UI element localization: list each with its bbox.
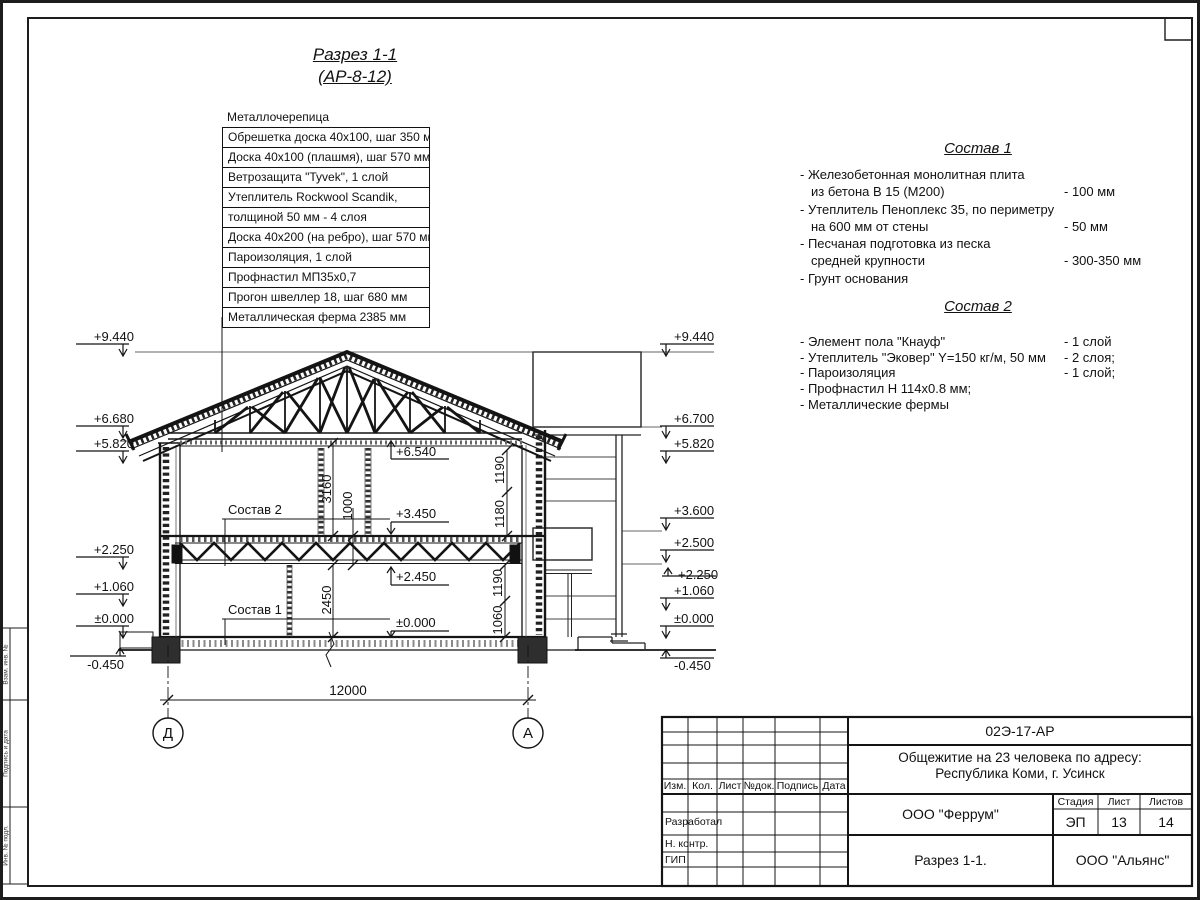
elevation-mark: +1.060 bbox=[674, 584, 734, 598]
callout-row: Пароизоляция, 1 слой bbox=[223, 248, 429, 268]
titleblock-col-data: Дата bbox=[820, 781, 848, 792]
sostav2-item: - Утеплитель "Эковер" Y=150 кг/м, 50 мм bbox=[800, 350, 1064, 366]
sostav1-heading: Состав 1 bbox=[923, 140, 1033, 157]
dim-overall-width: 12000 bbox=[303, 683, 393, 698]
elevation-mark: +9.440 bbox=[674, 330, 734, 344]
ground-and-foundation bbox=[118, 632, 716, 667]
level-label: +2.450 bbox=[396, 570, 436, 584]
dim-floor2-height: 3160 bbox=[320, 461, 334, 517]
elevation-mark: +1.060 bbox=[76, 580, 134, 594]
sostav2-item: - Элемент пола "Кнауф" bbox=[800, 334, 1064, 350]
sostav2-item: - Профнастил Н 114х0.8 мм; bbox=[800, 381, 1064, 397]
callout-row: Металлочерепица bbox=[222, 108, 430, 128]
sostav2-reference: Состав 2 bbox=[228, 503, 282, 517]
titleblock-role-gip: ГИП bbox=[665, 855, 686, 866]
callout-row: Утеплитель Rockwool Scandik, bbox=[223, 188, 429, 208]
elevation-mark: +2.250 bbox=[678, 568, 738, 582]
dim-truss-height: 1000 bbox=[341, 478, 355, 534]
level-label: +3.450 bbox=[396, 507, 436, 521]
titleblock-col-podpis: Подпись bbox=[775, 781, 820, 792]
callout-row: Доска 40х100 (плашмя), шаг 570 мм bbox=[223, 148, 429, 168]
titleblock-col-kol: Кол. bbox=[688, 781, 717, 792]
sostav2-list: - Элемент пола "Кнауф"- 1 слой - Утеплит… bbox=[800, 334, 1148, 413]
elevation-mark: +6.680 bbox=[76, 412, 134, 426]
sostav1-item: из бетона В 15 (М200) bbox=[800, 183, 1064, 200]
titleblock-role-developed: Разработал bbox=[665, 817, 722, 828]
sostav1-item: - Грунт основания bbox=[800, 270, 1064, 287]
dim-right-lower: 1060 bbox=[491, 592, 505, 648]
elevation-mark: +2.500 bbox=[674, 536, 734, 550]
titleblock-project-line2: Республика Коми, г. Усинск bbox=[848, 768, 1192, 779]
sostav1-item: средней крупности bbox=[800, 252, 1064, 269]
dim-right-upper: 1180 bbox=[493, 486, 507, 542]
callout-row: Профнастил МП35х0,7 bbox=[223, 268, 429, 288]
elevation-mark: ±0.000 bbox=[674, 612, 734, 626]
callout-row: Прогон швеллер 18, шаг 680 мм bbox=[223, 288, 429, 308]
elevation-mark: -0.450 bbox=[66, 658, 124, 672]
dim-floor1-height: 2450 bbox=[320, 572, 334, 628]
callout-row: Доска 40х200 (на ребро), шаг 570 мм bbox=[223, 228, 429, 248]
titleblock-col-list: Лист bbox=[717, 781, 743, 792]
titleblock-stage-value: ЭП bbox=[1053, 815, 1098, 830]
callout-row: Обрешетка доска 40х100, шаг 350 мм bbox=[223, 128, 429, 148]
titleblock-sheets-label: Листов bbox=[1140, 797, 1192, 808]
titleblock-col-izm: Изм. bbox=[662, 781, 688, 792]
sostav1-item: - Песчаная подготовка из песка bbox=[800, 235, 1064, 252]
titleblock-org: ООО "Феррум" bbox=[848, 807, 1053, 822]
section-drawing-geometry bbox=[0, 0, 1200, 900]
titleblock-role-ncontrol: Н. контр. bbox=[665, 839, 708, 850]
axis-bubble-left: Д bbox=[153, 725, 183, 742]
titleblock-col-ndok: №док. bbox=[743, 781, 775, 792]
titleblock-sheets-value: 14 bbox=[1140, 815, 1192, 830]
elevation-mark: +6.700 bbox=[674, 412, 734, 426]
level-label: ±0.000 bbox=[396, 616, 436, 630]
elevation-mark: +2.250 bbox=[76, 543, 134, 557]
titleblock-stage-label: Стадия bbox=[1053, 797, 1098, 808]
elevation-mark: +5.820 bbox=[674, 437, 734, 451]
drawing-title: Разрез 1-1 bbox=[280, 48, 430, 62]
sostav1-item: - Железобетонная монолитная плита bbox=[800, 166, 1064, 183]
elevation-flags-left bbox=[70, 344, 129, 656]
titleblock-project-line1: Общежитие на 23 человека по адресу: bbox=[848, 752, 1192, 763]
elevation-mark: +9.440 bbox=[76, 330, 134, 344]
level-label: +6.540 bbox=[396, 445, 436, 459]
titleblock-drawing-name: Разрез 1-1. bbox=[848, 853, 1053, 868]
roof-layers-callout: Металлочерепица Обрешетка доска 40х100, … bbox=[222, 108, 430, 328]
sostav1-reference: Состав 1 bbox=[228, 603, 282, 617]
elevation-mark: ±0.000 bbox=[76, 612, 134, 626]
sostav1-item: - Утеплитель Пеноплекс 35, по периметру bbox=[800, 201, 1064, 218]
drawing-sheet: Разрез 1-1 (АР-8-12) Металлочерепица Обр… bbox=[0, 0, 1200, 900]
elevation-mark: -0.450 bbox=[674, 659, 734, 673]
elevation-mark: +3.600 bbox=[674, 504, 734, 518]
callout-row: Ветрозащита "Tyvek", 1 слой bbox=[223, 168, 429, 188]
frame-stamp-label: Взам. инв. № bbox=[2, 630, 11, 700]
sostav2-heading: Состав 2 bbox=[923, 298, 1033, 315]
titleblock-doc-code: 02Э-17-АР bbox=[848, 724, 1192, 739]
frame-stamp-label: Подпись и дата bbox=[2, 719, 11, 789]
callout-row: Металлическая ферма 2385 мм bbox=[223, 308, 429, 328]
sostav1-list: - Железобетонная монолитная плита из бет… bbox=[800, 166, 1148, 287]
sostav1-item: на 600 мм от стены bbox=[800, 218, 1064, 235]
titleblock-sheet-value: 13 bbox=[1098, 815, 1140, 830]
axis-bubble-right: А bbox=[513, 725, 543, 742]
callout-row: толщиной 50 мм - 4 слоя bbox=[223, 208, 429, 228]
titleblock-sheet-label: Лист bbox=[1098, 797, 1140, 808]
sostav2-item: - Пароизоляция bbox=[800, 365, 1064, 381]
drawing-subtitle: (АР-8-12) bbox=[280, 70, 430, 84]
frame-stamp-label: Инв. № подл. bbox=[2, 811, 11, 881]
sostav2-item: - Металлические фермы bbox=[800, 397, 1064, 413]
elevation-mark: +5.820 bbox=[76, 437, 134, 451]
annex-elevation bbox=[533, 352, 645, 650]
titleblock-contractor: ООО "Альянс" bbox=[1053, 853, 1192, 868]
